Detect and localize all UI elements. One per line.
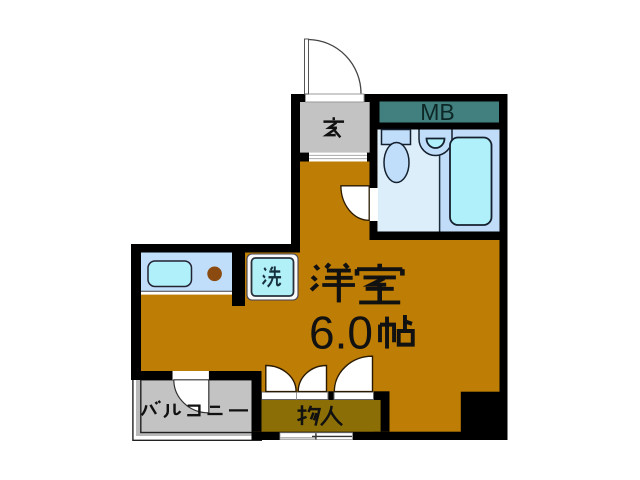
svg-text:6.0: 6.0 [309, 307, 373, 359]
svg-text:MB: MB [420, 99, 455, 125]
